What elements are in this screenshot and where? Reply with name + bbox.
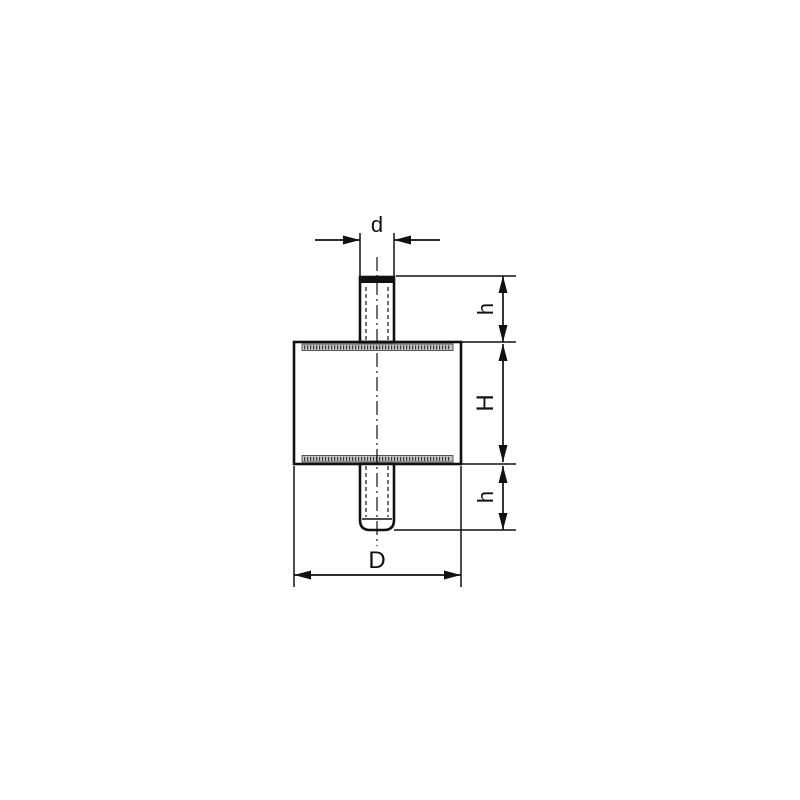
dimension-label-D: D: [368, 547, 385, 574]
vibration-mount-technical-drawing: d h H h: [0, 0, 800, 800]
dimension-h-bottom: h: [394, 466, 516, 530]
dimension-label-d: d: [371, 212, 383, 237]
arrowhead: [343, 236, 360, 245]
arrowhead: [499, 344, 508, 361]
dimension-label-H: H: [472, 394, 499, 411]
arrowhead: [499, 325, 508, 342]
drawing-canvas: d h H h: [0, 0, 800, 800]
dimension-H: H: [461, 344, 516, 464]
arrowhead: [499, 513, 508, 530]
arrowhead: [499, 276, 508, 293]
dimension-label-h-bottom: h: [473, 491, 498, 503]
dimension-h-top: h: [396, 276, 516, 342]
arrowhead: [499, 466, 508, 483]
arrowhead: [394, 236, 411, 245]
dimension-label-h-top: h: [473, 303, 498, 315]
arrowhead: [444, 571, 461, 580]
arrowhead: [499, 445, 508, 462]
arrowhead: [294, 571, 311, 580]
